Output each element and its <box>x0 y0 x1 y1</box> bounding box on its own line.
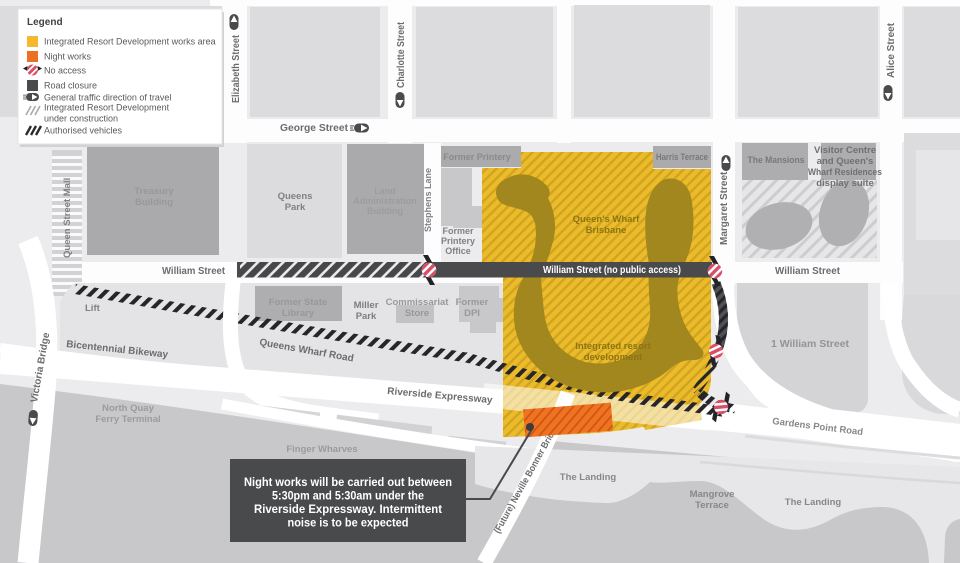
svg-text:Former: Former <box>456 297 489 308</box>
svg-text:Night works will be carried ou: Night works will be carried out between <box>244 477 452 489</box>
svg-text:Store: Store <box>405 308 429 319</box>
svg-text:noise is to be expected: noise is to be expected <box>288 518 409 530</box>
svg-text:General traffic direction of t: General traffic direction of travel <box>44 93 171 103</box>
svg-text:Integrated Resort Development: Integrated Resort Development <box>44 103 170 113</box>
svg-text:display suite: display suite <box>816 178 874 189</box>
svg-text:Integrated Resort Development: Integrated Resort Development works area <box>44 37 216 47</box>
svg-text:Finger Wharves: Finger Wharves <box>286 444 357 455</box>
svg-text:The Landing: The Landing <box>560 472 617 483</box>
svg-text:Former Printery: Former Printery <box>443 152 511 162</box>
svg-text:Elizabeth Street: Elizabeth Street <box>231 34 242 103</box>
svg-text:Margaret Street: Margaret Street <box>719 171 730 245</box>
svg-text:No access: No access <box>44 66 87 76</box>
svg-text:Integrated resort: Integrated resort <box>575 341 651 352</box>
svg-text:Charlotte Street: Charlotte Street <box>396 21 407 88</box>
svg-text:The Landing: The Landing <box>785 497 842 508</box>
svg-text:Terrace: Terrace <box>695 500 729 511</box>
svg-text:1 William Street: 1 William Street <box>771 338 850 350</box>
svg-text:Brisbane: Brisbane <box>586 225 627 236</box>
svg-text:The Mansions: The Mansions <box>748 155 805 166</box>
svg-text:and Queen's: and Queen's <box>817 156 874 167</box>
svg-text:George Street: George Street <box>280 122 348 134</box>
svg-text:Stephens Lane: Stephens Lane <box>423 168 433 232</box>
svg-text:Visitor Centre: Visitor Centre <box>814 145 876 156</box>
svg-text:Treasury: Treasury <box>134 186 174 197</box>
svg-text:Harris Terrace: Harris Terrace <box>656 152 708 162</box>
svg-text:Ferry Terminal: Ferry Terminal <box>95 414 160 425</box>
svg-text:Lift: Lift <box>85 303 101 314</box>
svg-text:Office: Office <box>445 246 471 256</box>
svg-text:DPI: DPI <box>464 308 480 319</box>
svg-text:Former: Former <box>442 226 474 236</box>
svg-text:Queens: Queens <box>278 191 313 202</box>
svg-text:Former State: Former State <box>269 297 328 308</box>
svg-text:Administration: Administration <box>353 196 417 206</box>
svg-text:Alice Street: Alice Street <box>886 22 897 78</box>
svg-text:Wharf Residences: Wharf Residences <box>808 167 882 178</box>
svg-text:Park: Park <box>356 311 377 322</box>
svg-text:Library: Library <box>282 308 315 319</box>
svg-text:Park: Park <box>285 202 306 213</box>
svg-text:Commissariat: Commissariat <box>386 297 450 308</box>
svg-text:Mangrove: Mangrove <box>690 489 735 500</box>
svg-text:Building: Building <box>135 197 173 208</box>
svg-text:under construction: under construction <box>44 114 118 124</box>
svg-text:William Street (no public acce: William Street (no public access) <box>543 265 681 276</box>
svg-text:development: development <box>584 352 643 363</box>
svg-text:Queen Street Mall: Queen Street Mall <box>62 178 73 258</box>
svg-text:Land: Land <box>374 186 396 196</box>
svg-text:Legend: Legend <box>27 17 63 28</box>
svg-text:Printery: Printery <box>441 236 475 246</box>
svg-text:5:30pm and 5:30am under the: 5:30pm and 5:30am under the <box>272 491 424 503</box>
svg-text:Riverside Expressway. Intermit: Riverside Expressway. Intermittent <box>254 504 442 516</box>
svg-text:North Quay: North Quay <box>102 403 154 414</box>
svg-text:Miller: Miller <box>354 300 379 311</box>
svg-text:Building: Building <box>367 206 403 216</box>
svg-text:William Street: William Street <box>162 265 225 277</box>
svg-text:Night works: Night works <box>44 52 92 62</box>
svg-text:William Street: William Street <box>775 265 840 277</box>
svg-text:Queen's Wharf: Queen's Wharf <box>573 214 640 225</box>
svg-text:Authorised vehicles: Authorised vehicles <box>44 126 123 136</box>
svg-text:Road closure: Road closure <box>44 81 97 91</box>
